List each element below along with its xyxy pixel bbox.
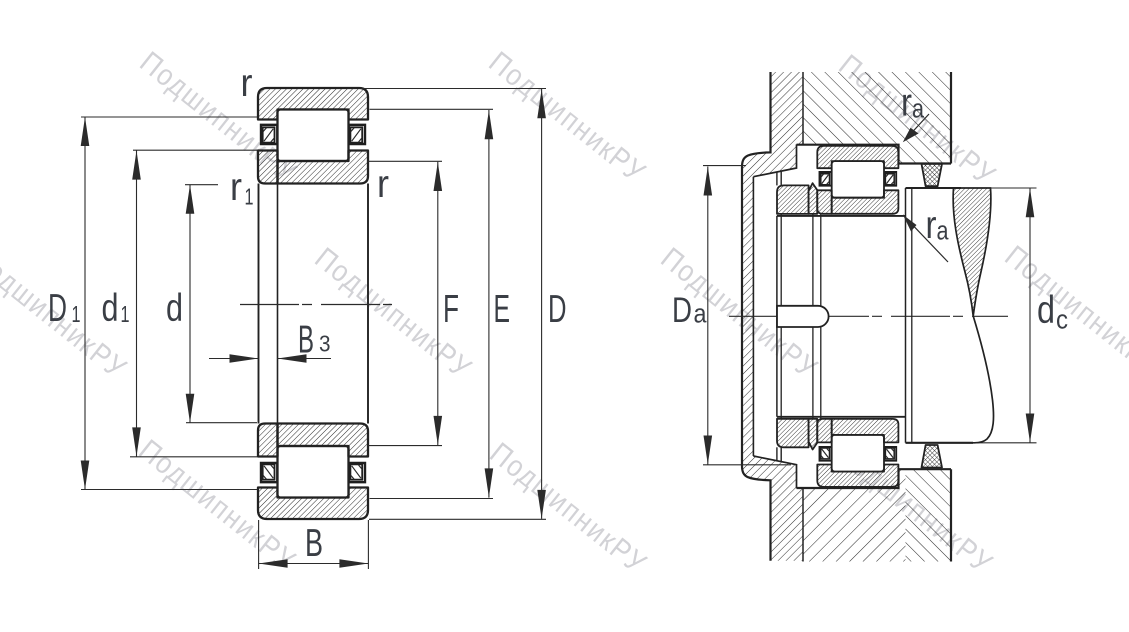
svg-text:F: F	[443, 288, 459, 331]
svg-text:d: d	[1037, 289, 1055, 332]
svg-text:3: 3	[319, 331, 331, 357]
svg-text:D: D	[548, 288, 567, 331]
svg-text:a: a	[912, 94, 925, 124]
svg-text:D: D	[672, 291, 692, 330]
svg-text:a: a	[694, 299, 708, 329]
svg-text:r: r	[377, 163, 389, 206]
svg-text:d: d	[102, 287, 119, 330]
svg-text:r: r	[241, 62, 253, 105]
svg-text:ПодшипникРУ: ПодшипникРУ	[484, 437, 653, 581]
svg-text:r: r	[926, 204, 937, 247]
svg-text:d: d	[166, 287, 183, 330]
svg-text:r: r	[901, 82, 912, 125]
svg-text:1: 1	[121, 301, 130, 327]
svg-text:ПодшипникРУ: ПодшипникРУ	[483, 46, 652, 190]
svg-text:B: B	[298, 319, 314, 362]
svg-text:a: a	[937, 216, 950, 246]
svg-text:r: r	[230, 166, 242, 209]
svg-text:1: 1	[245, 184, 254, 210]
svg-text:D: D	[48, 287, 67, 330]
svg-text:E: E	[494, 288, 511, 331]
svg-text:B: B	[305, 522, 323, 565]
svg-text:1: 1	[72, 301, 81, 327]
svg-text:c: c	[1056, 305, 1068, 335]
